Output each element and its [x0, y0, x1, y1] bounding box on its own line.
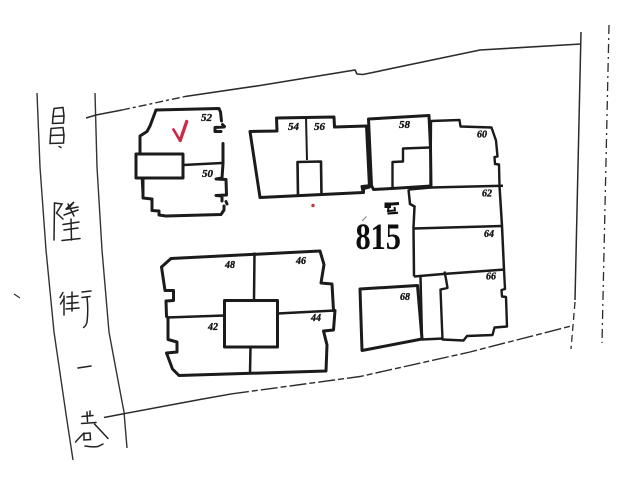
- svg-text:68: 68: [400, 292, 410, 303]
- svg-text:46: 46: [295, 256, 306, 267]
- svg-text:52: 52: [201, 112, 213, 124]
- svg-text:48: 48: [224, 260, 235, 271]
- svg-text:66: 66: [486, 272, 496, 283]
- svg-text:56: 56: [314, 121, 326, 133]
- svg-text:62: 62: [482, 189, 492, 200]
- svg-text:44: 44: [310, 313, 321, 324]
- svg-text:58: 58: [399, 119, 411, 131]
- svg-text:64: 64: [484, 229, 494, 240]
- svg-text:42: 42: [207, 322, 218, 333]
- svg-text:54: 54: [288, 121, 300, 133]
- svg-text:50: 50: [202, 168, 214, 180]
- svg-text:815: 815: [355, 217, 401, 257]
- svg-text:60: 60: [477, 130, 487, 141]
